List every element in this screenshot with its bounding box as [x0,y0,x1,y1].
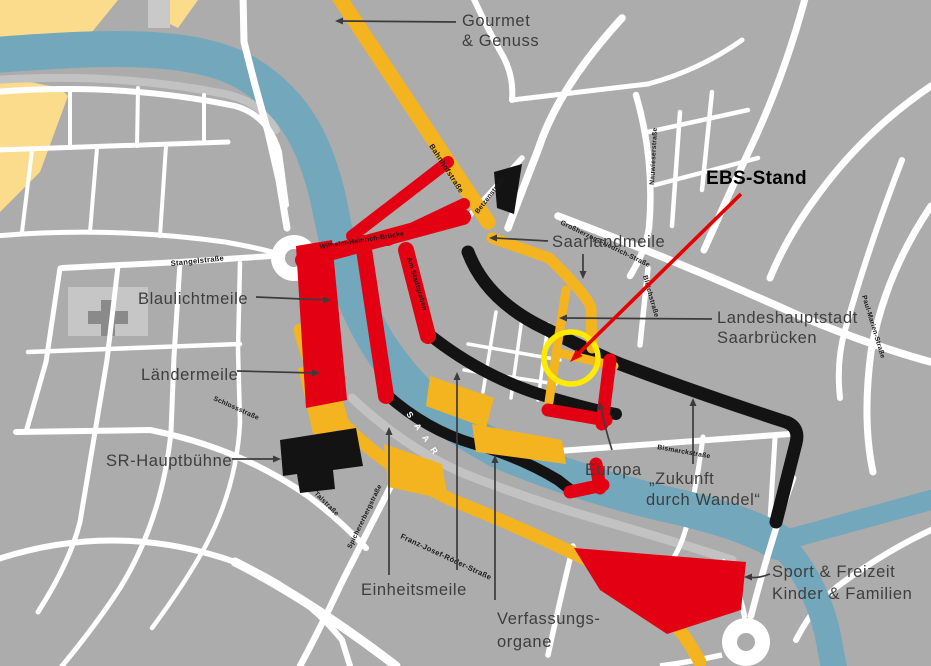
building-block-2 [148,0,170,28]
label-sr-hauptbuehne: SR-Hauptbühne [106,452,232,470]
label-europa: Europa [585,461,642,479]
label-sport-line1: Sport & Freizeit [772,563,895,581]
label-landeshauptstadt-line2: Saarbrücken [717,329,817,347]
label-landeshauptstadt-line1: Landeshauptstadt [717,309,858,327]
label-laendermeile: Ländermeile [141,366,238,384]
map-canvas: Stangelstraße Wilhelm-Heinrich-Brücke Am… [0,0,931,666]
label-zukunft-line2: durch Wandel“ [646,491,761,509]
label-gourmet-line1: Gourmet [462,12,530,30]
label-verfassungsorgane-line1: Verfassungs- [497,610,601,628]
label-einheitsmeile: Einheitsmeile [361,581,467,599]
label-sport-line2: Kinder & Familien [772,585,912,603]
label-blaulichtmeile: Blaulichtmeile [138,290,248,308]
label-verfassungsorgane-line2: organe [497,633,552,651]
festival-map: Stangelstraße Wilhelm-Heinrich-Brücke Am… [0,0,931,666]
label-ebs-stand: EBS-Stand [706,168,807,189]
label-saarlandmeile: Saarlandmeile [552,233,665,251]
label-gourmet-line2: & Genuss [462,32,539,50]
label-zukunft-line1: „Zukunft [649,470,714,488]
